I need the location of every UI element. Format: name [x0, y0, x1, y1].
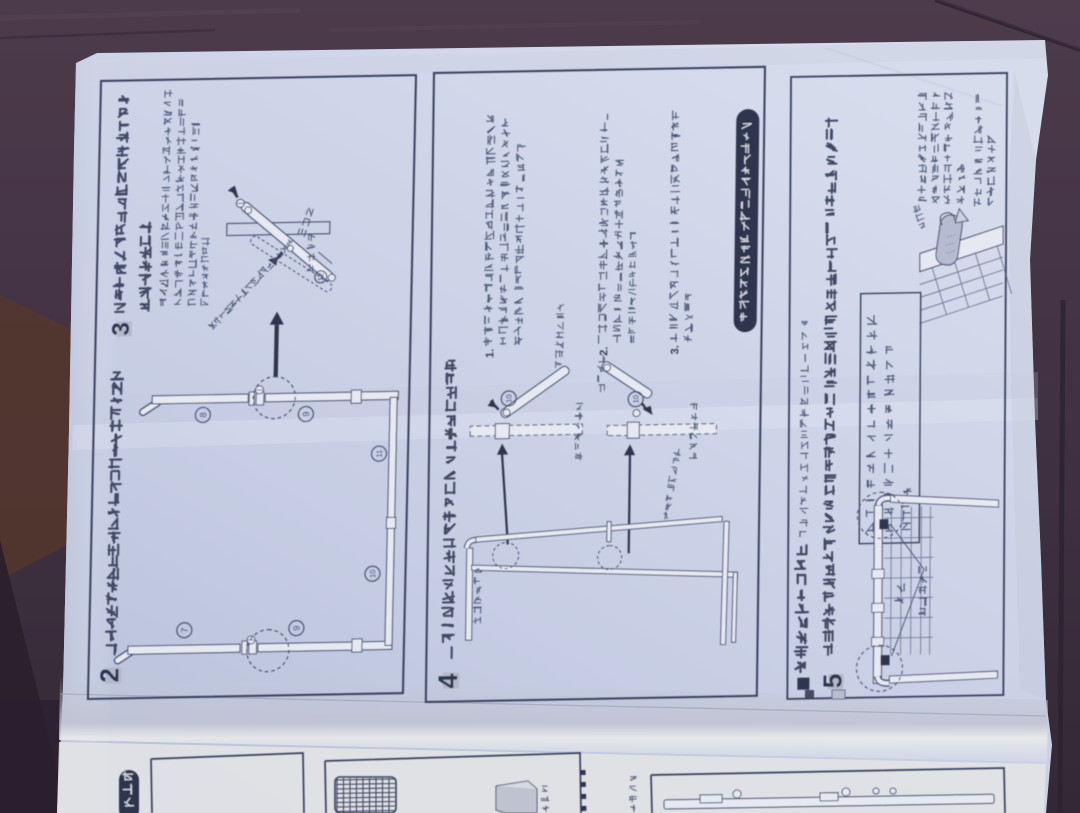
svg-text:2: 2 [94, 668, 124, 683]
svg-text:10: 10 [631, 395, 640, 404]
svg-text:3.: 3. [669, 345, 681, 354]
svg-text:12: 12 [316, 273, 325, 282]
svg-text:7: 7 [180, 628, 190, 633]
svg-text:4: 4 [433, 673, 463, 689]
svg-text:9: 9 [301, 411, 311, 416]
svg-text:10: 10 [368, 569, 377, 578]
svg-text:10: 10 [504, 394, 513, 403]
svg-text:3: 3 [108, 322, 135, 336]
svg-text:1.: 1. [484, 349, 496, 358]
svg-text:8: 8 [198, 412, 208, 417]
svg-text:9: 9 [292, 626, 302, 631]
svg-text:11: 11 [375, 450, 384, 458]
svg-text:5: 5 [817, 673, 847, 688]
svg-text:2.: 2. [598, 346, 610, 355]
